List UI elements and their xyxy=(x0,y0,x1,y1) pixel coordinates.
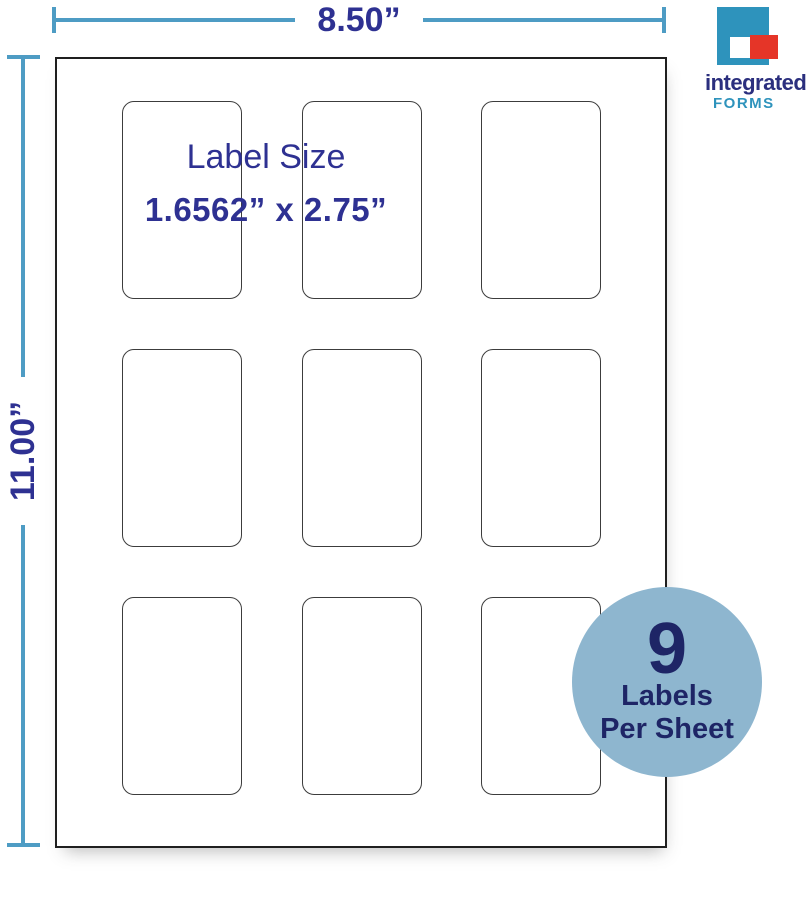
logo-white-square xyxy=(730,37,750,58)
label-sheet xyxy=(55,57,667,848)
dimension-line-segment xyxy=(21,525,25,843)
dimension-line-segment xyxy=(21,59,25,377)
height-dimension-label-slot: 11.00” xyxy=(6,377,40,525)
label-cell xyxy=(302,349,422,547)
dimension-line-segment xyxy=(423,18,662,22)
width-dimension-label: 8.50” xyxy=(317,3,400,37)
logo-mark-icon xyxy=(717,7,769,65)
logo-red-square xyxy=(750,35,778,59)
label-cell xyxy=(122,349,242,547)
label-cell xyxy=(122,101,242,299)
label-cell xyxy=(481,101,601,299)
label-cell xyxy=(302,597,422,795)
badge-count: 9 xyxy=(647,619,687,681)
badge-line-per-sheet: Per Sheet xyxy=(600,713,734,745)
integrated-forms-logo: integrated FORMS xyxy=(705,7,806,111)
logo-name-text: integrated xyxy=(705,72,806,94)
label-cell xyxy=(122,597,242,795)
logo-subname-text: FORMS xyxy=(713,96,806,111)
dimension-end-tick xyxy=(7,843,40,847)
labels-per-sheet-badge: 9 Labels Per Sheet xyxy=(572,587,762,777)
label-cell xyxy=(481,349,601,547)
width-dimension: 8.50” xyxy=(52,6,666,34)
dimension-line-segment xyxy=(56,18,295,22)
badge-line-labels: Labels xyxy=(621,680,713,712)
label-template-diagram: 8.50” 11.00” Label Size 1.6562” x 2.75” … xyxy=(0,0,806,903)
height-dimension-label: 11.00” xyxy=(6,401,40,501)
dimension-end-tick xyxy=(662,7,666,33)
height-dimension: 11.00” xyxy=(6,55,40,847)
label-cell xyxy=(302,101,422,299)
